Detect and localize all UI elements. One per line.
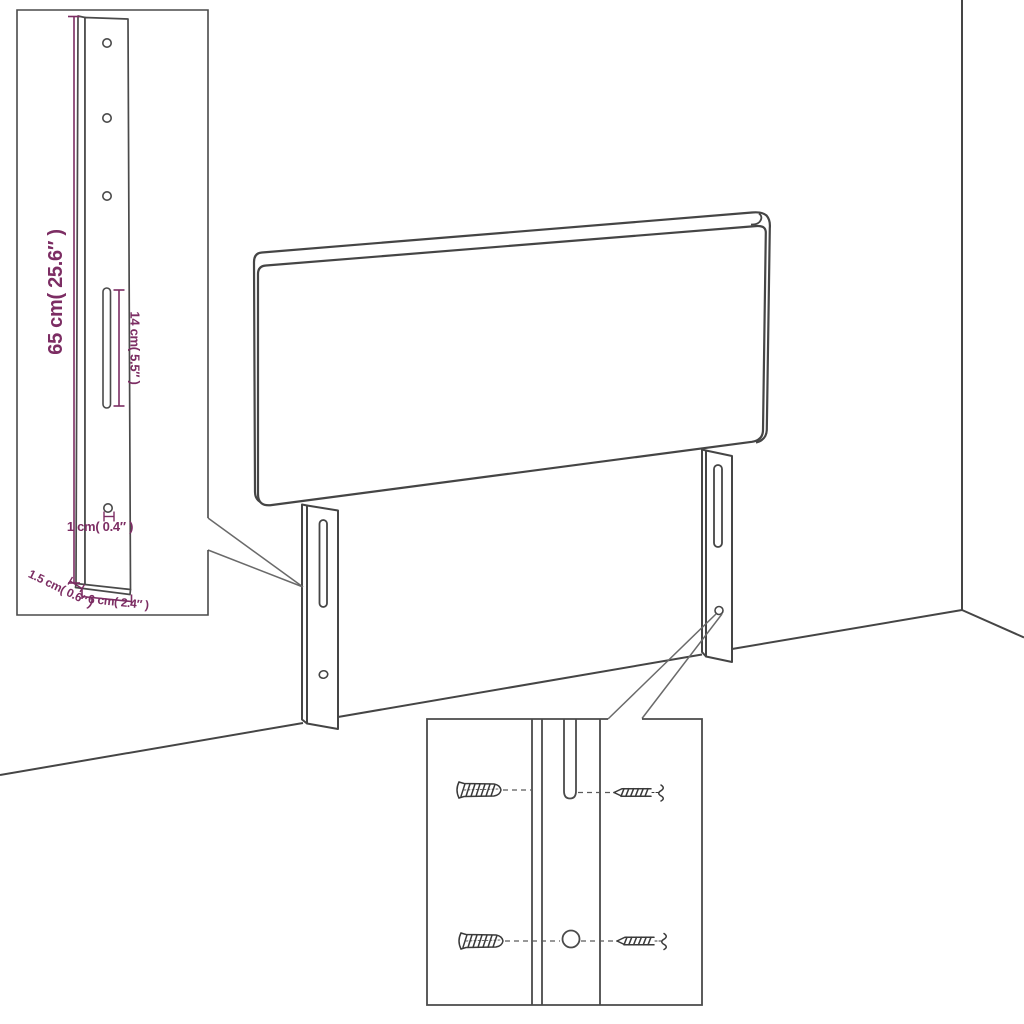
left-leg-bracket [302,505,338,730]
headboard-assembly-diagram: 65 cm( 25.6″ ) 14 cm( 5.5″ ) 1 cm( 0.4″ … [0,0,1024,1024]
right-leg-bracket [702,450,732,663]
detail-leg-side-face [76,16,85,586]
hole-diameter-label: 1 cm( 0.4″ ) [67,519,133,534]
callout-lines [208,518,722,719]
leg-width-label: 6 cm( 2.4″ ) [87,592,149,612]
screw-bottom [617,934,666,950]
slot-length-label: 14 cm( 5.5″ ) [128,311,143,384]
wall-plug-top [457,782,501,798]
bracket-slot [564,719,576,799]
headboard-panel [254,212,770,505]
floor-line-left [0,723,303,775]
wall-plug-bottom [459,933,503,949]
leg-detail-callout-lower [208,550,303,587]
hardware-callout-left [608,614,716,719]
hardware-callout-right [642,614,722,719]
left-leg-front-face [307,506,338,730]
bracket-hole [563,931,580,948]
leg-detail-callout-upper [208,518,303,587]
leg-height-label: 65 cm( 25.6″ ) [45,229,67,354]
floor-line-middle [338,655,702,718]
panel-front-face [258,226,766,505]
floor-line-near-corner [732,610,962,649]
floor-line-right [962,610,1024,638]
hardware-inset [427,719,702,1005]
screw-top [614,785,663,801]
panel-rim-curl [751,214,761,225]
diagram-canvas: 65 cm( 25.6″ ) 14 cm( 5.5″ ) 1 cm( 0.4″ … [0,0,1024,1024]
leg-detail-inset: 65 cm( 25.6″ ) 14 cm( 5.5″ ) 1 cm( 0.4″ … [17,10,208,615]
